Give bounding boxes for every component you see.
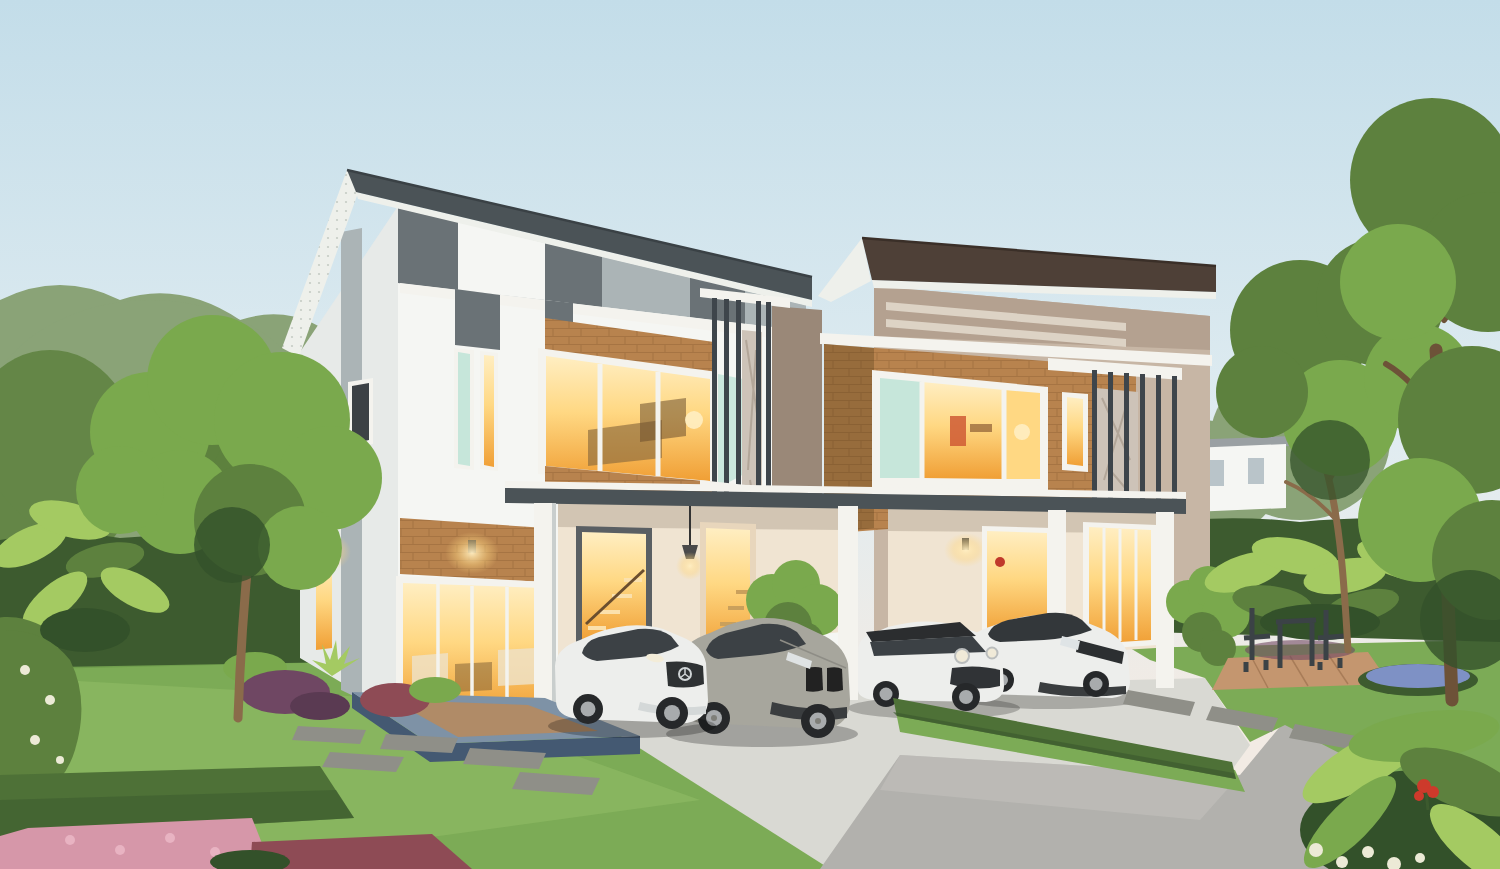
rendering-canvas [0, 0, 1500, 869]
mini-headlight [955, 649, 969, 663]
mini-grille [950, 666, 1000, 688]
house-rendering [0, 0, 1500, 869]
kidney-grille [806, 667, 823, 692]
right-house-slim-window [1062, 392, 1088, 472]
teal-curtain-pane [880, 378, 922, 478]
right-house-corner-window [872, 370, 1048, 486]
